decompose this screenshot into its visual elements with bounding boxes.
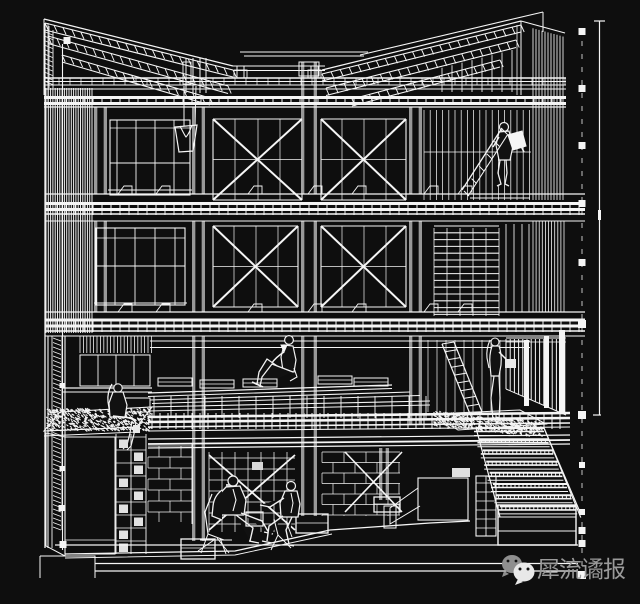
svg-text:犀流谲报: 犀流谲报 xyxy=(537,556,626,582)
